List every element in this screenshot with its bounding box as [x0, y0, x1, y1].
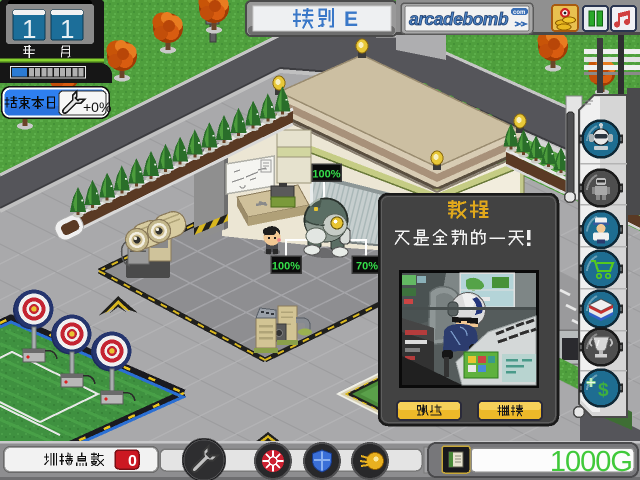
svg-text:arcadebomb: arcadebomb — [409, 9, 509, 29]
svg-text:100%: 100% — [272, 261, 300, 273]
svg-text:70%: 70% — [356, 261, 378, 273]
svg-text:E: E — [344, 8, 358, 31]
svg-text:1: 1 — [60, 14, 74, 44]
svg-text:+0%: +0% — [83, 99, 111, 115]
svg-text:com: com — [513, 10, 525, 16]
svg-text:100%: 100% — [312, 169, 340, 181]
svg-text:$: $ — [598, 380, 609, 401]
svg-text:1000G: 1000G — [550, 446, 632, 478]
svg-text:0: 0 — [128, 453, 137, 470]
svg-text:1: 1 — [22, 14, 36, 44]
